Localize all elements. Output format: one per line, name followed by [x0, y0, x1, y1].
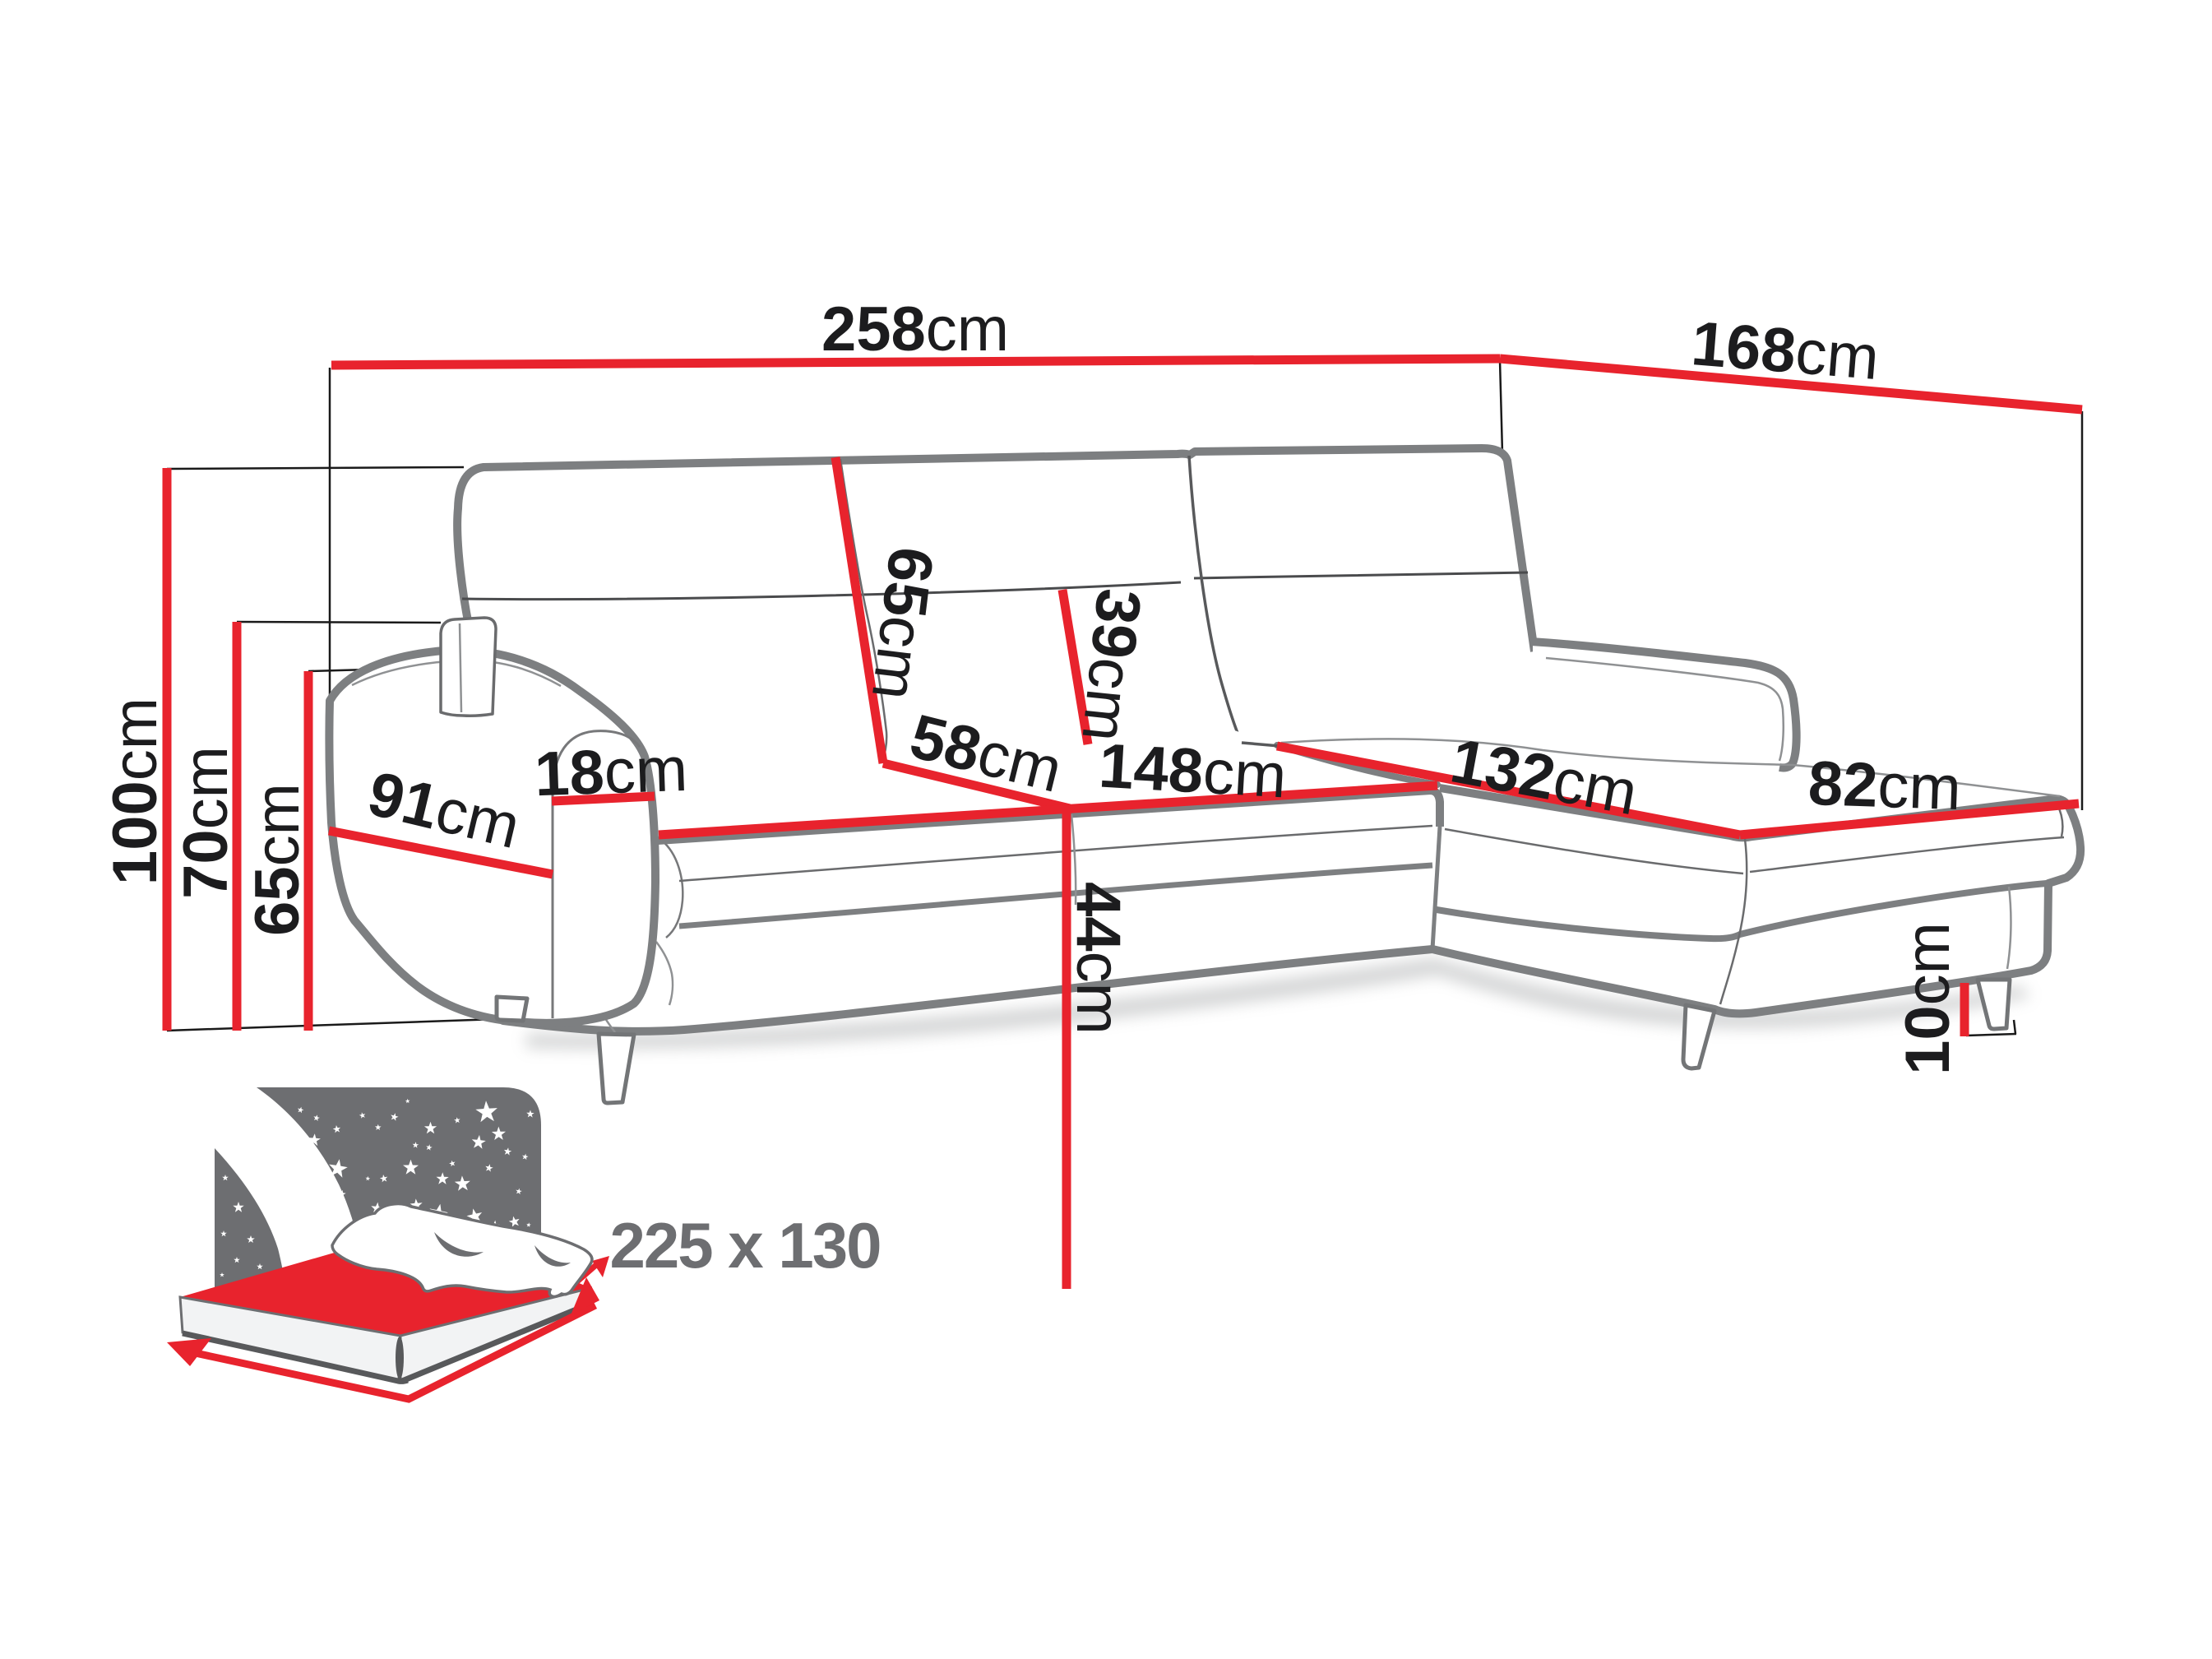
- svg-text:258cm: 258cm: [821, 294, 1009, 364]
- svg-text:225 x 130: 225 x 130: [609, 1209, 880, 1281]
- svg-text:65cm: 65cm: [243, 783, 312, 936]
- svg-text:82cm: 82cm: [1807, 748, 1963, 823]
- svg-text:10cm: 10cm: [1893, 922, 1963, 1075]
- svg-text:148cm: 148cm: [1097, 731, 1289, 812]
- svg-text:18cm: 18cm: [534, 735, 689, 809]
- svg-text:100cm: 100cm: [100, 697, 170, 885]
- svg-text:70cm: 70cm: [171, 746, 241, 899]
- svg-text:44cm: 44cm: [1063, 882, 1133, 1035]
